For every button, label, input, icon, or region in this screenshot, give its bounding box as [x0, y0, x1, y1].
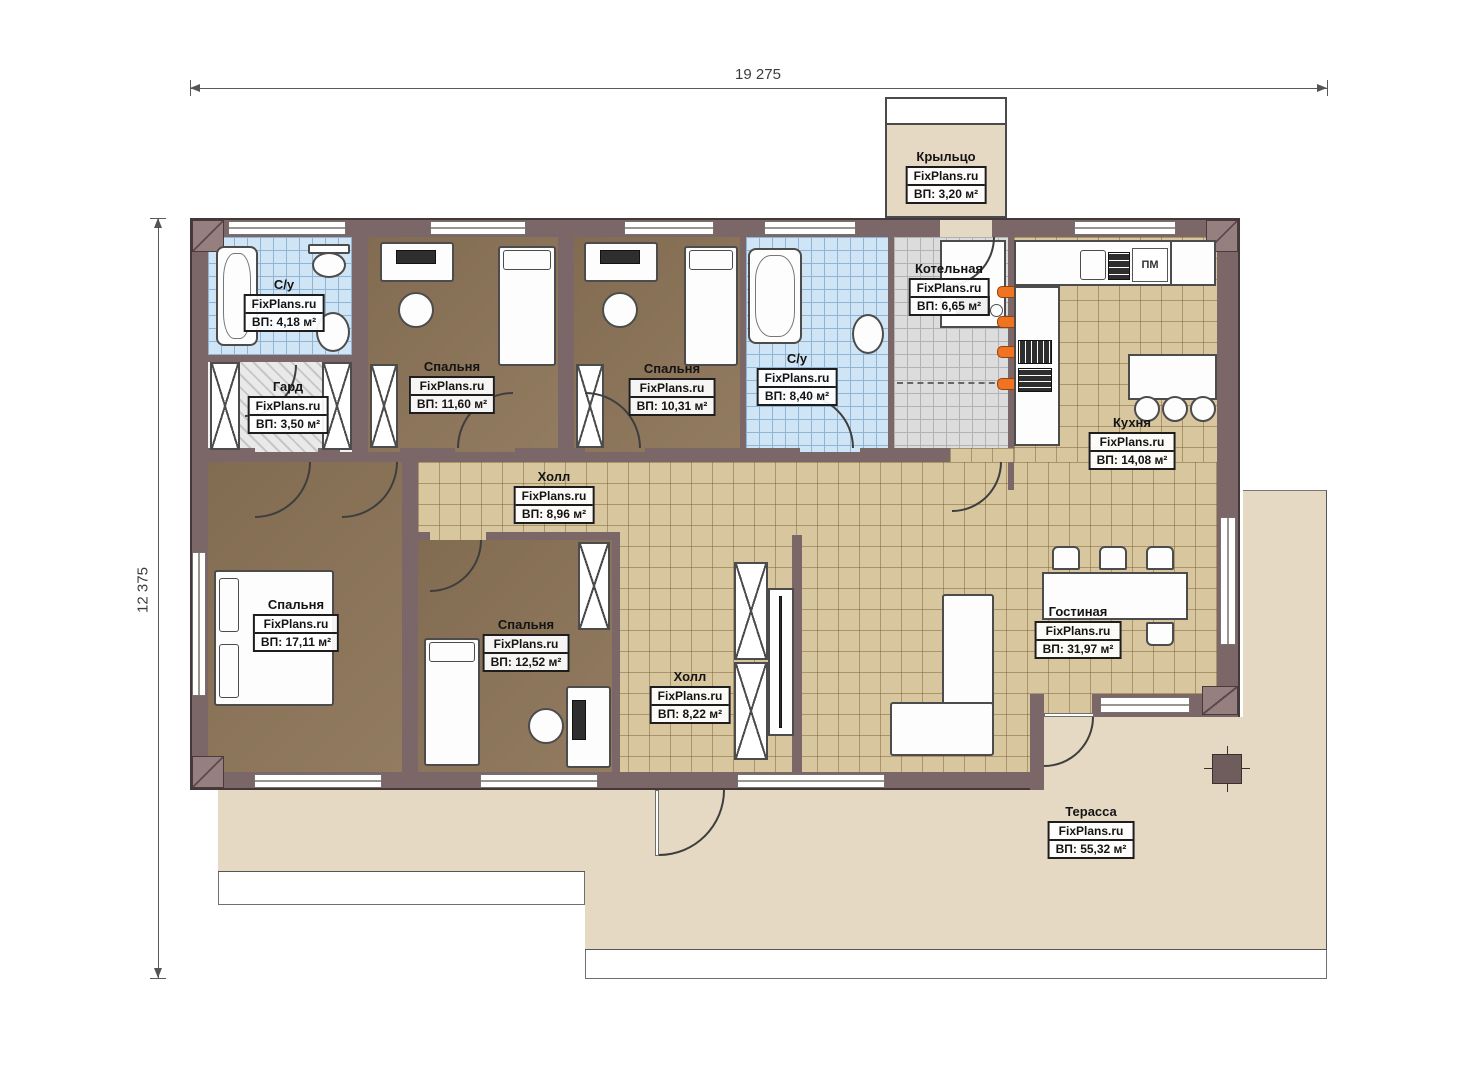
room-name: Спальня: [483, 618, 570, 632]
room-area: ВП: 4,18 м²: [246, 314, 323, 330]
wall: [645, 448, 800, 462]
kitchen-counter-left: [1014, 286, 1060, 446]
window: [192, 552, 206, 696]
boiler-door-opening: [950, 448, 1014, 462]
room-label-wardrobe: Гард FixPlans.ruВП: 3,50 м²: [248, 380, 329, 434]
pillow: [689, 250, 733, 270]
room-name: Котельная: [909, 262, 990, 276]
closet: [734, 562, 768, 660]
window: [480, 774, 598, 788]
chair: [602, 292, 638, 328]
pillow: [219, 578, 239, 632]
room-label-terrace: Терасса FixPlans.ruВП: 55,32 м²: [1048, 805, 1135, 859]
room-name: Терасса: [1048, 805, 1135, 819]
room-name: Спальня: [253, 598, 339, 612]
dim-tick: [1327, 80, 1328, 96]
room-area: ВП: 55,32 м²: [1050, 841, 1133, 857]
terrace-step-right: [585, 950, 1327, 979]
terrace-floor-side: [1243, 490, 1327, 790]
room-name: Крыльцо: [906, 150, 987, 164]
room-label-living: Гостиная FixPlans.ruВП: 31,97 м²: [1035, 605, 1122, 659]
tv-screen: [779, 596, 782, 728]
room-label-kitchen: Кухня FixPlans.ruВП: 14,08 м²: [1089, 416, 1176, 470]
dimension-line-top: [190, 88, 1327, 89]
wall: [400, 448, 455, 462]
wall: [515, 448, 585, 462]
brand-link: FixPlans.ru: [485, 636, 568, 654]
brand-link: FixPlans.ru: [246, 296, 323, 314]
closet: [370, 364, 398, 448]
corner-block: [1202, 686, 1238, 715]
window: [228, 221, 346, 235]
wall: [860, 448, 950, 462]
terrace-column: [1212, 754, 1242, 784]
room-name: С/у: [244, 278, 325, 292]
chair: [398, 292, 434, 328]
dining-chair: [1146, 622, 1174, 646]
room-label-bedroom4: Спальня FixPlans.ruВП: 12,52 м²: [483, 618, 570, 672]
corner-block: [192, 756, 224, 788]
window: [254, 774, 382, 788]
window: [1074, 221, 1176, 235]
pillow: [503, 250, 551, 270]
chair: [528, 708, 564, 744]
room-area: ВП: 3,20 м²: [908, 186, 985, 202]
wall: [418, 532, 430, 540]
bar-stool: [1190, 396, 1216, 422]
wall: [402, 462, 418, 772]
dim-arrow-up: [154, 218, 162, 228]
room-area: ВП: 8,96 м²: [516, 506, 593, 522]
brand-link: FixPlans.ru: [1091, 434, 1174, 452]
wall: [208, 448, 255, 462]
closet: [210, 362, 240, 450]
window: [737, 774, 885, 788]
room-area: ВП: 3,50 м²: [250, 416, 327, 432]
window: [1100, 697, 1190, 713]
bar-table: [1128, 354, 1217, 400]
room-area: ВП: 11,60 м²: [411, 396, 493, 412]
window: [624, 221, 714, 235]
wall: [740, 237, 746, 452]
dimension-width: 19 275: [735, 66, 781, 83]
dishwasher-label: ПМ: [1141, 259, 1158, 271]
brand-link: FixPlans.ru: [759, 370, 836, 388]
sink: [852, 314, 884, 354]
room-label-hall1: Холл FixPlans.ruВП: 8,96 м²: [514, 470, 595, 524]
window: [430, 221, 526, 235]
brand-link: FixPlans.ru: [908, 168, 985, 186]
room-label-bedroom1: Спальня FixPlans.ruВП: 11,60 м²: [409, 360, 495, 414]
brand-link: FixPlans.ru: [631, 380, 714, 398]
desk-monitor: [396, 250, 436, 264]
wall: [612, 532, 620, 772]
microwave: [1018, 368, 1052, 392]
desk-monitor: [600, 250, 640, 264]
brand-link: FixPlans.ru: [516, 488, 593, 506]
room-label-porch: Крыльцо FixPlans.ruВП: 3,20 м²: [906, 150, 987, 204]
sofa-base: [890, 702, 994, 756]
room-label-bedroom2: Спальня FixPlans.ruВП: 10,31 м²: [629, 362, 716, 416]
dimension-height: 12 375: [135, 567, 152, 613]
dimension-line-left: [158, 218, 159, 978]
dim-arrow-left: [190, 84, 200, 92]
closet: [578, 542, 610, 630]
dining-chair: [1052, 546, 1080, 570]
gas-line: [897, 382, 1005, 384]
room-area: ВП: 14,08 м²: [1091, 452, 1174, 468]
wall: [318, 448, 340, 462]
brand-link: FixPlans.ru: [1037, 623, 1120, 641]
wall: [486, 532, 612, 540]
wall: [1030, 694, 1044, 790]
brand-link: FixPlans.ru: [652, 688, 729, 706]
room-area: ВП: 12,52 м²: [485, 654, 568, 670]
oven: [1018, 340, 1052, 364]
room-area: ВП: 8,40 м²: [759, 388, 836, 404]
room-label-bath2: С/у FixPlans.ruВП: 8,40 м²: [757, 352, 838, 406]
sofa-chaise: [942, 594, 994, 710]
pillow: [429, 642, 475, 662]
room-area: ВП: 17,11 м²: [255, 634, 337, 650]
terrace-step-left: [218, 872, 585, 905]
room-label-hall2: Холл FixPlans.ruВП: 8,22 м²: [650, 670, 731, 724]
bathtub: [748, 248, 802, 344]
room-label-boiler: Котельная FixPlans.ruВП: 6,65 м²: [909, 262, 990, 316]
brand-link: FixPlans.ru: [1050, 823, 1133, 841]
brand-link: FixPlans.ru: [250, 398, 327, 416]
dining-chair: [1099, 546, 1127, 570]
wall: [888, 237, 894, 452]
room-label-bath1: С/у FixPlans.ruВП: 4,18 м²: [244, 278, 325, 332]
dim-arrow-down: [154, 968, 162, 978]
room-name: Гостиная: [1035, 605, 1122, 619]
room-name: С/у: [757, 352, 838, 366]
desk-monitor: [572, 700, 586, 740]
brand-link: FixPlans.ru: [911, 280, 988, 298]
brand-link: FixPlans.ru: [411, 378, 493, 396]
room-name: Холл: [650, 670, 731, 684]
door-leaf: [1044, 713, 1094, 717]
room-area: ВП: 31,97 м²: [1037, 641, 1120, 657]
toilet-bowl: [312, 252, 346, 278]
fridge: [1170, 240, 1216, 286]
window: [764, 221, 856, 235]
stove: [1108, 252, 1130, 280]
brand-link: FixPlans.ru: [255, 616, 337, 634]
room-name: Кухня: [1089, 416, 1176, 430]
room-area: ВП: 8,22 м²: [652, 706, 729, 722]
dim-arrow-right: [1317, 84, 1327, 92]
door-leaf: [655, 790, 659, 856]
room-label-bedroom3: Спальня FixPlans.ruВП: 17,11 м²: [253, 598, 339, 652]
room-name: Холл: [514, 470, 595, 484]
dishwasher: ПМ: [1132, 248, 1168, 282]
pillow: [219, 644, 239, 698]
terrace-floor-left: [218, 788, 585, 872]
room-name: Спальня: [409, 360, 495, 374]
dining-chair: [1146, 546, 1174, 570]
room-area: ВП: 10,31 м²: [631, 398, 714, 414]
dim-tick: [150, 978, 166, 979]
window: [1220, 517, 1236, 645]
floor-plan: ПМ Крыльцо FixPlans.ruВП: 3,20 м: [0, 0, 1473, 1080]
room-name: Гард: [248, 380, 329, 394]
closet: [734, 662, 768, 760]
kitchen-sink: [1080, 250, 1106, 280]
room-name: Спальня: [629, 362, 716, 376]
room-area: ВП: 6,65 м²: [911, 298, 988, 314]
wall: [558, 237, 574, 452]
porch-stoop: [885, 97, 1007, 125]
porch-door-opening: [940, 220, 992, 237]
wall: [352, 237, 368, 452]
